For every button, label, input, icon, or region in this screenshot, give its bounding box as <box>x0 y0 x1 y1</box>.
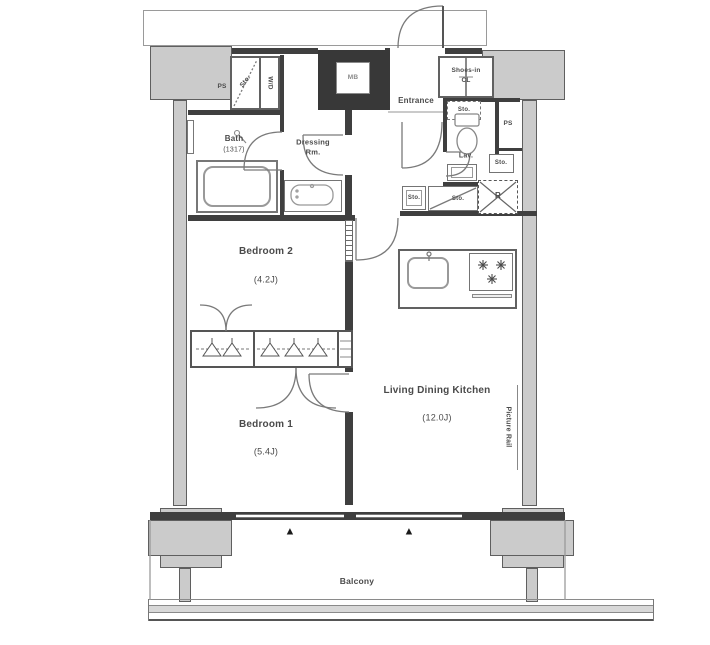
wall-bath-dressing-a <box>280 55 284 132</box>
wall-bath-top <box>188 110 284 115</box>
window-marker-icon-left: ▲ <box>284 527 295 538</box>
shoes-closet-label: Shoes-in <box>451 68 480 75</box>
closet1-door-arc-right <box>296 368 336 408</box>
pipe-space-right-label: PS <box>503 121 512 128</box>
bath-window <box>187 120 194 154</box>
vanity-inner <box>451 167 473 178</box>
picture-rail-line <box>517 385 518 470</box>
balcony-railing-line-bottom <box>148 619 654 621</box>
balcony-railing-line-top <box>148 599 654 600</box>
stove <box>469 253 513 291</box>
shoes-closet-label-2: CL <box>461 78 470 85</box>
pillar-bottom-right-b <box>490 520 574 556</box>
bath-size-label: (1317) <box>223 147 244 154</box>
closet-row <box>190 330 353 368</box>
ldk-label: Living Dining Kitchen <box>384 386 491 396</box>
bedroom1-label: Bedroom 1 <box>239 420 293 430</box>
closet2-door-arc-left <box>200 305 226 331</box>
wall-ps-bottom <box>497 148 522 151</box>
pillar-top-left <box>150 46 232 100</box>
exterior-wall-right <box>522 100 537 506</box>
storage-hall-1-label: Sto. <box>408 195 420 201</box>
sliding-door-bedroom2 <box>345 220 353 262</box>
floor-plan: Bath (1317) Dressing Rm. Entrance Shoes-… <box>0 0 710 645</box>
balcony-railing-end-left <box>148 599 149 621</box>
washbasin-counter <box>284 180 342 212</box>
toilet-icon <box>455 114 479 154</box>
bath-label: Bath <box>225 135 244 143</box>
storage-entrance-label: Sto. <box>458 107 470 113</box>
wall-top-b <box>445 48 482 54</box>
bedroom2-size-label: (4.2J) <box>254 276 278 285</box>
meter-box-label: MB <box>348 75 359 82</box>
balcony-stem-right <box>526 568 538 602</box>
window-marker-icon-right: ▲ <box>403 527 414 538</box>
closet2-door-arc-right <box>226 305 252 331</box>
pillar-top-right <box>482 50 565 100</box>
closet-divider-2 <box>337 331 339 367</box>
dressing-room-label-2: Rm. <box>306 148 321 156</box>
picture-rail-label: Picture Rail <box>505 407 512 448</box>
bathtub <box>203 166 271 207</box>
wall-ldk-left-b <box>345 412 353 505</box>
balcony-railing-end-right <box>653 599 654 621</box>
closet-divider-1 <box>253 331 255 367</box>
bedroom1-size-label: (5.4J) <box>254 448 278 457</box>
storage-wd-divider <box>259 57 261 109</box>
wall-bedroom2-top <box>188 215 355 221</box>
balcony-stem-left <box>179 568 191 602</box>
refrigerator-label: R <box>495 192 501 200</box>
towel-bar <box>472 294 512 298</box>
wall-lav-right <box>495 98 499 154</box>
exterior-wall-left <box>173 100 187 506</box>
window-bedroom1 <box>236 514 344 518</box>
storage-lavatory-label: Sto. <box>495 160 507 166</box>
entrance-label: Entrance <box>398 97 434 105</box>
pipe-space-left-label: PS <box>217 84 226 91</box>
storage-hall-2-label: Sto. <box>452 196 464 202</box>
window-ldk <box>356 514 462 518</box>
wall-top-a <box>232 48 318 54</box>
ldk-size-label: (12.0J) <box>422 414 451 423</box>
balcony-label: Balcony <box>340 577 374 586</box>
bedroom2-label: Bedroom 2 <box>239 247 293 257</box>
genkan-door-arc <box>402 122 442 168</box>
wall-hall-dressing-b <box>345 175 352 218</box>
corridor-outline <box>143 10 487 46</box>
balcony-railing-band <box>148 605 654 613</box>
lavatory-label: Lav. <box>459 153 473 160</box>
washer-dryer-label: W/D <box>266 76 273 89</box>
wall-hall-dressing-a <box>345 110 352 135</box>
bedroom1-door-arc <box>309 374 349 412</box>
kitchen-sink <box>407 257 449 289</box>
pillar-bottom-left-b <box>148 520 232 556</box>
ldk-door-arc <box>356 218 398 260</box>
dressing-room-label: Dressing <box>296 138 330 146</box>
closet1-door-arc-left <box>256 368 296 408</box>
